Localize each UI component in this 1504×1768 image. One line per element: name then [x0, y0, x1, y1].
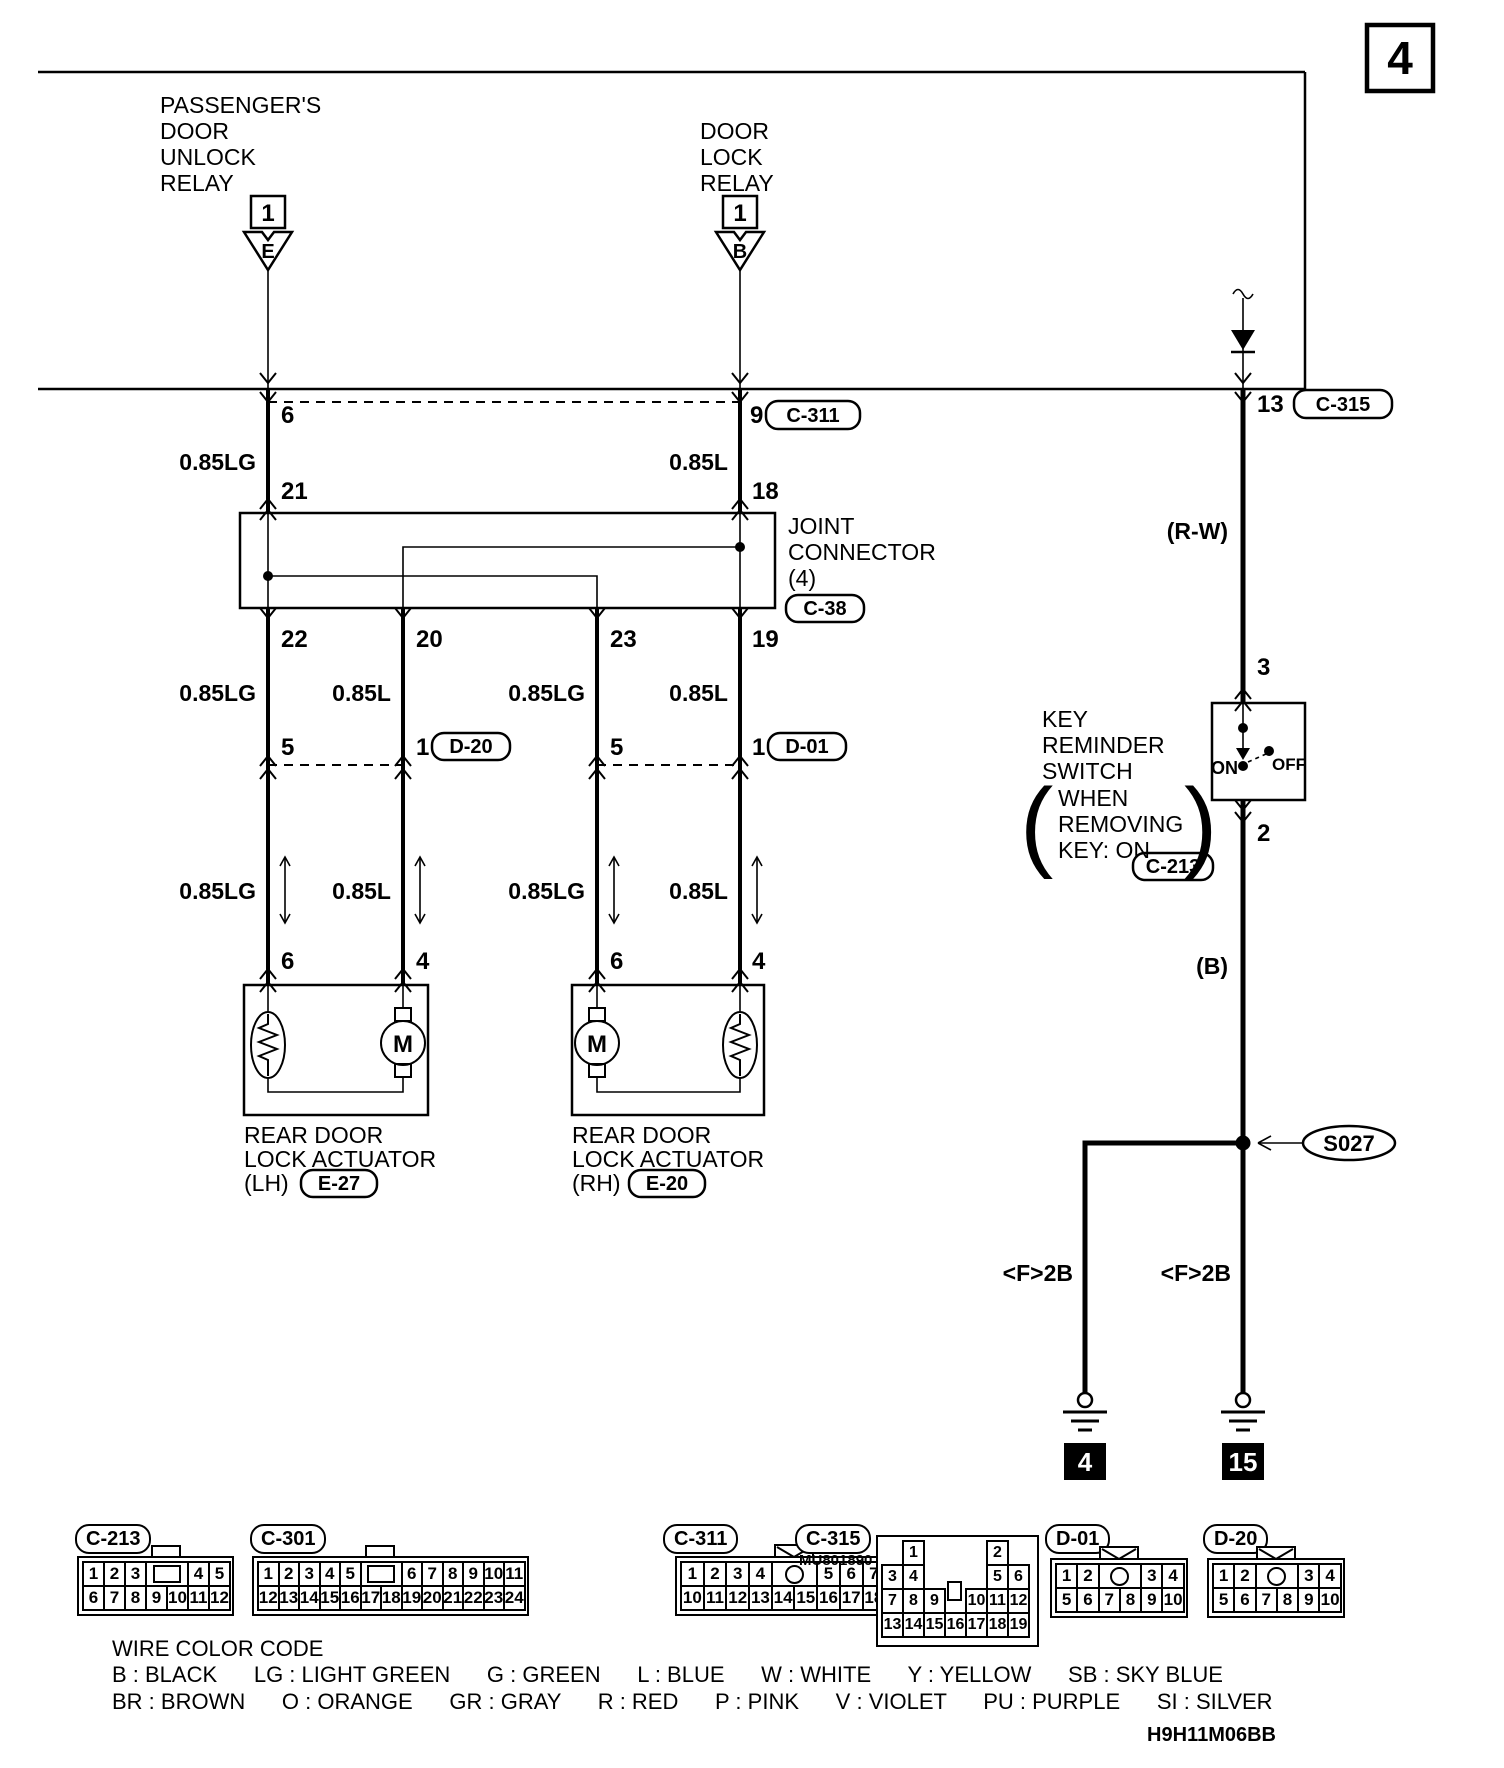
connector-pinout-C-301: 123456789101112131415161718192021222324 [252, 1556, 529, 1616]
pin-cell: 10 [166, 1585, 189, 1611]
connector-note: MU801890 [799, 1552, 872, 1569]
pin-cell: 1 [1055, 1563, 1078, 1589]
pin-cell: 14 [771, 1585, 796, 1611]
ground-id-4: 4 [1064, 1443, 1106, 1480]
connector-badge-e27: E-27 [301, 1170, 377, 1197]
pin-cell: 16 [944, 1612, 967, 1638]
connector-badge-e20: E-20 [629, 1170, 705, 1197]
pin-cell: 4 [187, 1561, 210, 1587]
pin-cell: 15 [793, 1585, 818, 1611]
pin-cell: 15 [923, 1612, 946, 1638]
key-reminder-switch-box: ON OFF [1211, 703, 1306, 800]
pin-cell: 5 [339, 1561, 362, 1587]
svg-text:E-20: E-20 [646, 1173, 688, 1195]
pin-cell: 8 [1119, 1587, 1142, 1613]
pin-cell [1255, 1563, 1300, 1589]
pin-cell [360, 1561, 403, 1587]
pin-cell: 1 [257, 1561, 280, 1587]
lock-relay-label-3: RELAY [700, 170, 774, 196]
on-contact [1238, 761, 1248, 771]
pin-cell: 2 [278, 1561, 301, 1587]
connector-badge-C-301: C-301 [250, 1524, 326, 1554]
legend-line-1: B : BLACK LG : LIGHT GREEN G : GREEN L :… [112, 1662, 1223, 1688]
ground-icon [1221, 1393, 1265, 1430]
splice-dot [1236, 1136, 1251, 1151]
actuator-rh-label-1: REAR DOOR [572, 1122, 711, 1148]
key-switch-cond-3: KEY: ON [1058, 837, 1150, 863]
wire-gauge: 0.85L [332, 680, 391, 706]
pin-cell: 18 [380, 1585, 403, 1611]
pin-cell [947, 1581, 962, 1601]
motion-arrow-icon [415, 857, 425, 923]
pin-cell: 6 [1007, 1564, 1030, 1590]
connector-badge-C-213: C-213 [75, 1524, 151, 1554]
legend-line-2: BR : BROWN O : ORANGE GR : GRAY R : RED … [112, 1689, 1273, 1715]
pin-cell: 15 [319, 1585, 342, 1611]
actuator-lh-label-3: (LH) [244, 1170, 289, 1196]
actuator-lh-label-1: REAR DOOR [244, 1122, 383, 1148]
wire-gauge: 0.85LG [179, 680, 256, 706]
switch-arrow-icon [1236, 748, 1250, 760]
pin-cell: 5 [1055, 1587, 1078, 1613]
pin-18: 18 [752, 478, 779, 505]
pin-cell: 2 [986, 1540, 1009, 1566]
wire-gauge: 0.85L [332, 878, 391, 904]
actuator-rh-label-3: (RH) [572, 1170, 621, 1196]
pin-13: 13 [1257, 391, 1284, 418]
joint-connector-box [240, 513, 775, 608]
pin-cell: 12 [208, 1585, 231, 1611]
pin-22: 22 [281, 626, 308, 653]
harness-ref: <F>2B [1003, 1260, 1073, 1286]
lock-relay-label-2: LOCK [700, 144, 763, 170]
pin-cell: 13 [881, 1612, 904, 1638]
pin-cell: 3 [298, 1561, 321, 1587]
key-switch-cond-2: REMOVING [1058, 811, 1183, 837]
switch-arm [1248, 754, 1266, 762]
pin-cell: 24 [503, 1585, 526, 1611]
pin-cell: 4 [902, 1564, 925, 1590]
connector-badge-c315-ref: C-315 [1294, 390, 1392, 418]
pin-1-rh: 1 [752, 734, 765, 761]
pin-cell: 12 [725, 1585, 750, 1611]
connector-pinout-D-01: 12345678910 [1050, 1558, 1188, 1618]
pin-cell: 3 [1140, 1563, 1163, 1589]
pin-cell: 2 [1076, 1563, 1099, 1589]
pin-cell: 19 [401, 1585, 424, 1611]
connector-pinout-C-315: 12345678910111213141516171819 [876, 1535, 1039, 1647]
pin-cell: 23 [483, 1585, 506, 1611]
pin-cell: 11 [187, 1585, 210, 1611]
pin-cell: 21 [442, 1585, 465, 1611]
pin-cell: 4 [319, 1561, 342, 1587]
pin-cell: 1 [902, 1540, 925, 1566]
pin-cell: 2 [1233, 1563, 1256, 1589]
motor-m: M [393, 1031, 413, 1058]
pin-21: 21 [281, 478, 308, 505]
pin-cell: 10 [1161, 1587, 1184, 1613]
svg-text:C-213: C-213 [1146, 856, 1200, 878]
connector-pinout-D-20: 12345678910 [1207, 1558, 1345, 1618]
motor-terminal [589, 1008, 605, 1021]
joint-connector-label-3: (4) [788, 565, 816, 591]
pin-cell: 7 [103, 1585, 126, 1611]
unlock-relay-label-3: UNLOCK [160, 144, 257, 170]
unlock-relay-terminal: E [261, 241, 274, 263]
wire-gauge: 0.85L [669, 878, 728, 904]
ground-id-15: 15 [1222, 1443, 1264, 1480]
switch-off-label: OFF [1272, 755, 1306, 774]
rear-door-lock-actuator-lh: M [244, 985, 428, 1115]
lock-relay-terminal: B [733, 241, 747, 263]
key-switch-label-3: SWITCH [1042, 758, 1133, 784]
junction-dot [735, 542, 745, 552]
pin-cell: 3 [725, 1561, 750, 1587]
pin-cell [1098, 1563, 1143, 1589]
connector-badge-C-315: C-315 [795, 1524, 871, 1554]
lock-relay-pin: 1 [733, 200, 746, 227]
pin-cell: 1 [680, 1561, 705, 1587]
pin-cell: 4 [748, 1561, 773, 1587]
pin-3: 3 [1257, 654, 1270, 681]
pin-cell: 19 [1007, 1612, 1030, 1638]
wire-gauge: 0.85LG [508, 878, 585, 904]
pin-cell: 3 [881, 1564, 904, 1590]
pin-cell: 14 [298, 1585, 321, 1611]
pin-cell: 20 [421, 1585, 444, 1611]
document-code: H9H11M06BB [1147, 1724, 1276, 1747]
pin-cell: 6 [401, 1561, 424, 1587]
pin-cell: 16 [816, 1585, 841, 1611]
pin-cell [145, 1561, 189, 1587]
svg-text:D-01: D-01 [785, 736, 828, 758]
connector-badge-d20-ref: D-20 [432, 733, 510, 760]
door-lock-relay: DOOR LOCK RELAY 1 B [700, 118, 774, 389]
pin-cell: 14 [902, 1612, 925, 1638]
pin-9-top: 9 [750, 402, 763, 429]
pin-cell: 9 [145, 1585, 168, 1611]
pin-cell: 5 [208, 1561, 231, 1587]
wire-gauge: 0.85LG [179, 449, 256, 475]
pin-cell: 12 [1007, 1588, 1030, 1614]
pin-cell: 2 [703, 1561, 728, 1587]
pin-cell: 7 [1098, 1587, 1121, 1613]
pin-cell: 17 [965, 1612, 988, 1638]
passengers-door-unlock-relay: PASSENGER'S DOOR UNLOCK RELAY 1 E [160, 92, 321, 389]
connector-badge-c311-ref: C-311 [766, 401, 860, 429]
svg-text:C-38: C-38 [803, 598, 846, 620]
connector-badge-C-311: C-311 [663, 1524, 738, 1554]
pin-1-lh: 1 [416, 734, 429, 761]
pin-cell: 1 [82, 1561, 105, 1587]
actuator-rh-label-2: LOCK ACTUATOR [572, 1146, 764, 1172]
act-pin-4-rh: 4 [752, 948, 766, 975]
pin-cell: 5 [986, 1564, 1009, 1590]
motion-arrow-icon [752, 857, 762, 923]
connector-pinout-C-213: 123456789101112 [77, 1556, 234, 1616]
pin-6-top: 6 [281, 402, 294, 429]
pin-cell: 13 [748, 1585, 773, 1611]
pin-cell: 1 [1212, 1563, 1235, 1589]
pin-cell: 9 [923, 1588, 946, 1614]
pin-5-rh: 5 [610, 734, 623, 761]
paren-open: ( [1020, 768, 1053, 880]
unlock-relay-pin: 1 [261, 200, 274, 227]
pin-cell: 7 [1255, 1587, 1278, 1613]
svg-text:C-315: C-315 [1316, 394, 1370, 416]
actuator-lh-label-2: LOCK ACTUATOR [244, 1146, 436, 1172]
joint-connector-label-1: JOINT [788, 513, 854, 539]
pin-cell: 12 [257, 1585, 280, 1611]
pin-19: 19 [752, 626, 779, 653]
pin-cell: 9 [462, 1561, 485, 1587]
pin-cell: 10 [1318, 1587, 1341, 1613]
connector-badge-d01-ref: D-01 [768, 733, 846, 760]
pin-cell: 7 [881, 1588, 904, 1614]
splice-id: S027 [1323, 1131, 1374, 1156]
rear-door-lock-actuator-rh: M [572, 985, 764, 1115]
pin-cell: 10 [483, 1561, 506, 1587]
pin-cell: 8 [442, 1561, 465, 1587]
wire-gauge: 0.85LG [179, 878, 256, 904]
wire-gauge: 0.85L [669, 680, 728, 706]
pin-20: 20 [416, 626, 443, 653]
harness-ref: <F>2B [1161, 1260, 1231, 1286]
unlock-relay-label-2: DOOR [160, 118, 229, 144]
motor-terminal [395, 1008, 411, 1021]
wire-gauge: 0.85LG [508, 680, 585, 706]
motion-arrow-icon [609, 857, 619, 923]
pin-2: 2 [1257, 820, 1270, 847]
pin-cell: 5 [1212, 1587, 1235, 1613]
pin-cell: 10 [965, 1588, 988, 1614]
pin-cell: 9 [1140, 1587, 1163, 1613]
wire-color-b: (B) [1196, 953, 1228, 979]
pin-23: 23 [610, 626, 637, 653]
act-pin-6-lh: 6 [281, 948, 294, 975]
joint-connector-label-2: CONNECTOR [788, 539, 936, 565]
act-pin-4-lh: 4 [416, 948, 430, 975]
connector-badge-c38: C-38 [786, 595, 864, 622]
svg-text:4: 4 [1078, 1447, 1093, 1477]
page-number: 4 [1387, 32, 1413, 84]
svg-text:D-20: D-20 [449, 736, 492, 758]
pin-5-lh: 5 [281, 734, 294, 761]
pin-cell: 11 [703, 1585, 728, 1611]
pin-cell: 16 [339, 1585, 362, 1611]
pin-cell: 8 [902, 1588, 925, 1614]
pin-cell: 13 [278, 1585, 301, 1611]
unlock-relay-label-1: PASSENGER'S [160, 92, 321, 118]
pin-cell: 18 [986, 1612, 1009, 1638]
wire-break-icon [1233, 290, 1253, 299]
ground-icon [1063, 1393, 1107, 1430]
svg-text:C-311: C-311 [786, 405, 839, 427]
pin-cell: 3 [1297, 1563, 1320, 1589]
key-switch-label-1: KEY [1042, 706, 1088, 732]
motor-m: M [587, 1031, 607, 1058]
pin-cell: 10 [680, 1585, 705, 1611]
page-number-box: 4 [1367, 25, 1433, 91]
pin-cell: 4 [1161, 1563, 1184, 1589]
diode-icon [1231, 330, 1255, 350]
key-switch-cond-1: WHEN [1058, 785, 1128, 811]
pin-cell: 8 [124, 1585, 147, 1611]
wire-gauge: 0.85L [669, 449, 728, 475]
act-pin-6-rh: 6 [610, 948, 623, 975]
lock-relay-label-1: DOOR [700, 118, 769, 144]
pin-cell: 11 [503, 1561, 526, 1587]
unlock-relay-label-4: RELAY [160, 170, 234, 196]
pin-cell: 6 [1076, 1587, 1099, 1613]
pin-cell: 17 [839, 1585, 864, 1611]
pin-cell: 8 [1276, 1587, 1299, 1613]
pin-cell: 11 [986, 1588, 1009, 1614]
motion-arrow-icon [280, 857, 290, 923]
pin-cell: 2 [103, 1561, 126, 1587]
svg-text:15: 15 [1229, 1447, 1258, 1477]
wiring-diagram-page: 4 PASSENGER'S DOOR UNLOCK RELAY 1 E DOOR… [0, 0, 1504, 1768]
wire-color-rw: (R-W) [1167, 518, 1228, 544]
splice-callout: S027 [1258, 1126, 1395, 1160]
key-switch-label-2: REMINDER [1042, 732, 1165, 758]
junction-dot [263, 571, 273, 581]
pin-cell: 3 [124, 1561, 147, 1587]
pin-cell: 7 [421, 1561, 444, 1587]
pin-cell: 6 [82, 1585, 105, 1611]
wiring-diagram: 4 PASSENGER'S DOOR UNLOCK RELAY 1 E DOOR… [0, 0, 1504, 1768]
pin-cell: 6 [1233, 1587, 1256, 1613]
legend-title: WIRE COLOR CODE [112, 1636, 323, 1662]
svg-text:E-27: E-27 [318, 1173, 360, 1195]
pin-cell: 17 [360, 1585, 383, 1611]
pin-cell: 9 [1297, 1587, 1320, 1613]
pin-cell: 22 [462, 1585, 485, 1611]
pin-cell: 4 [1318, 1563, 1341, 1589]
